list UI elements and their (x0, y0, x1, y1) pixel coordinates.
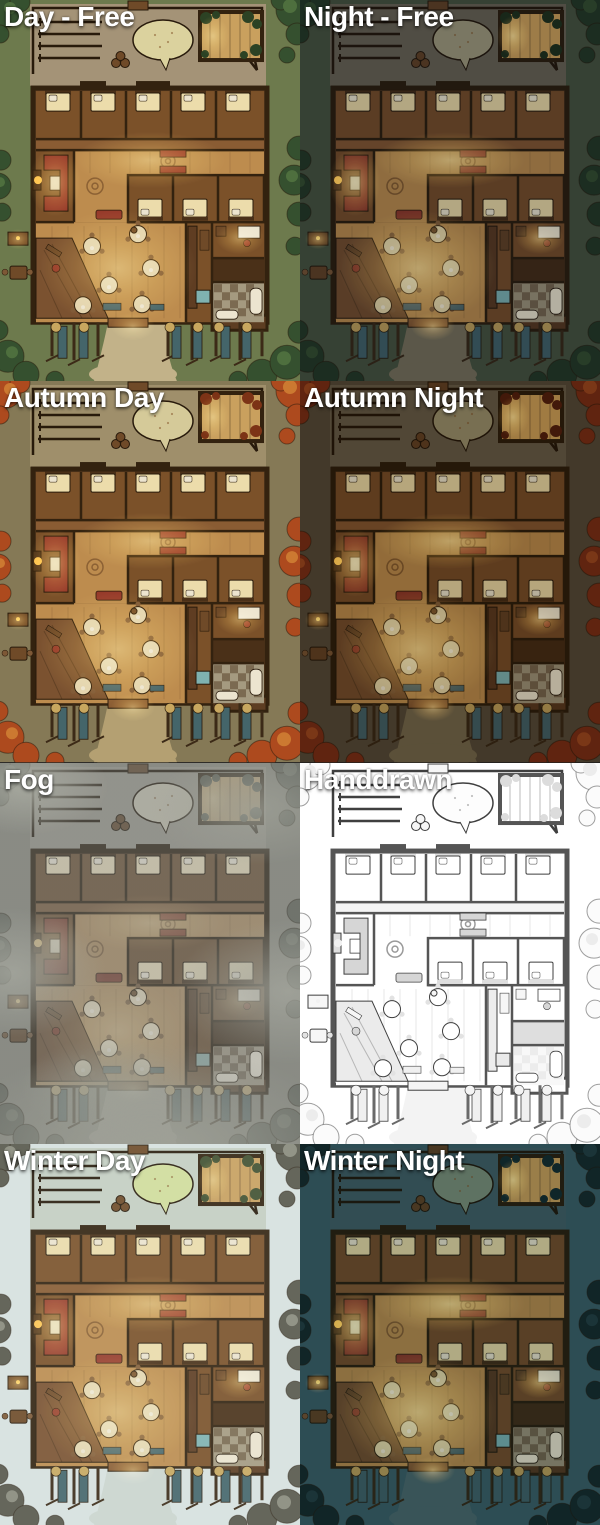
map-variants-sheet: Day - Free Night - Free Autumn Day Autum… (0, 0, 600, 1525)
map-tile-winter-night: Winter Night (300, 1144, 600, 1525)
tavern-map-art (300, 1144, 600, 1525)
tile-label: Winter Day (4, 1145, 145, 1177)
tavern-map-art (300, 763, 600, 1144)
tile-label: Autumn Day (4, 382, 164, 414)
variant-grid: Day - Free Night - Free Autumn Day Autum… (0, 0, 600, 1525)
tavern-map-art (300, 0, 600, 381)
tile-label: Night - Free (304, 1, 454, 33)
tile-label: Autumn Night (304, 382, 483, 414)
tavern-map-art (0, 0, 300, 381)
map-tile-winter-day: Winter Day (0, 1144, 300, 1525)
tavern-map-art (0, 1144, 300, 1525)
map-tile-night-free: Night - Free (300, 0, 600, 381)
tavern-map-art (300, 381, 600, 762)
map-tile-autumn-night: Autumn Night (300, 381, 600, 762)
tile-label: Day - Free (4, 1, 134, 33)
map-tile-handdrawn: Handdrawn (300, 763, 600, 1144)
tavern-map-art (0, 381, 300, 762)
tile-label: Handdrawn (304, 764, 452, 796)
tavern-map-art (0, 763, 300, 1144)
tile-label: Winter Night (304, 1145, 464, 1177)
map-tile-day-free: Day - Free (0, 0, 300, 381)
map-tile-fog: Fog (0, 763, 300, 1144)
tile-label: Fog (4, 764, 54, 796)
map-tile-autumn-day: Autumn Day (0, 381, 300, 762)
